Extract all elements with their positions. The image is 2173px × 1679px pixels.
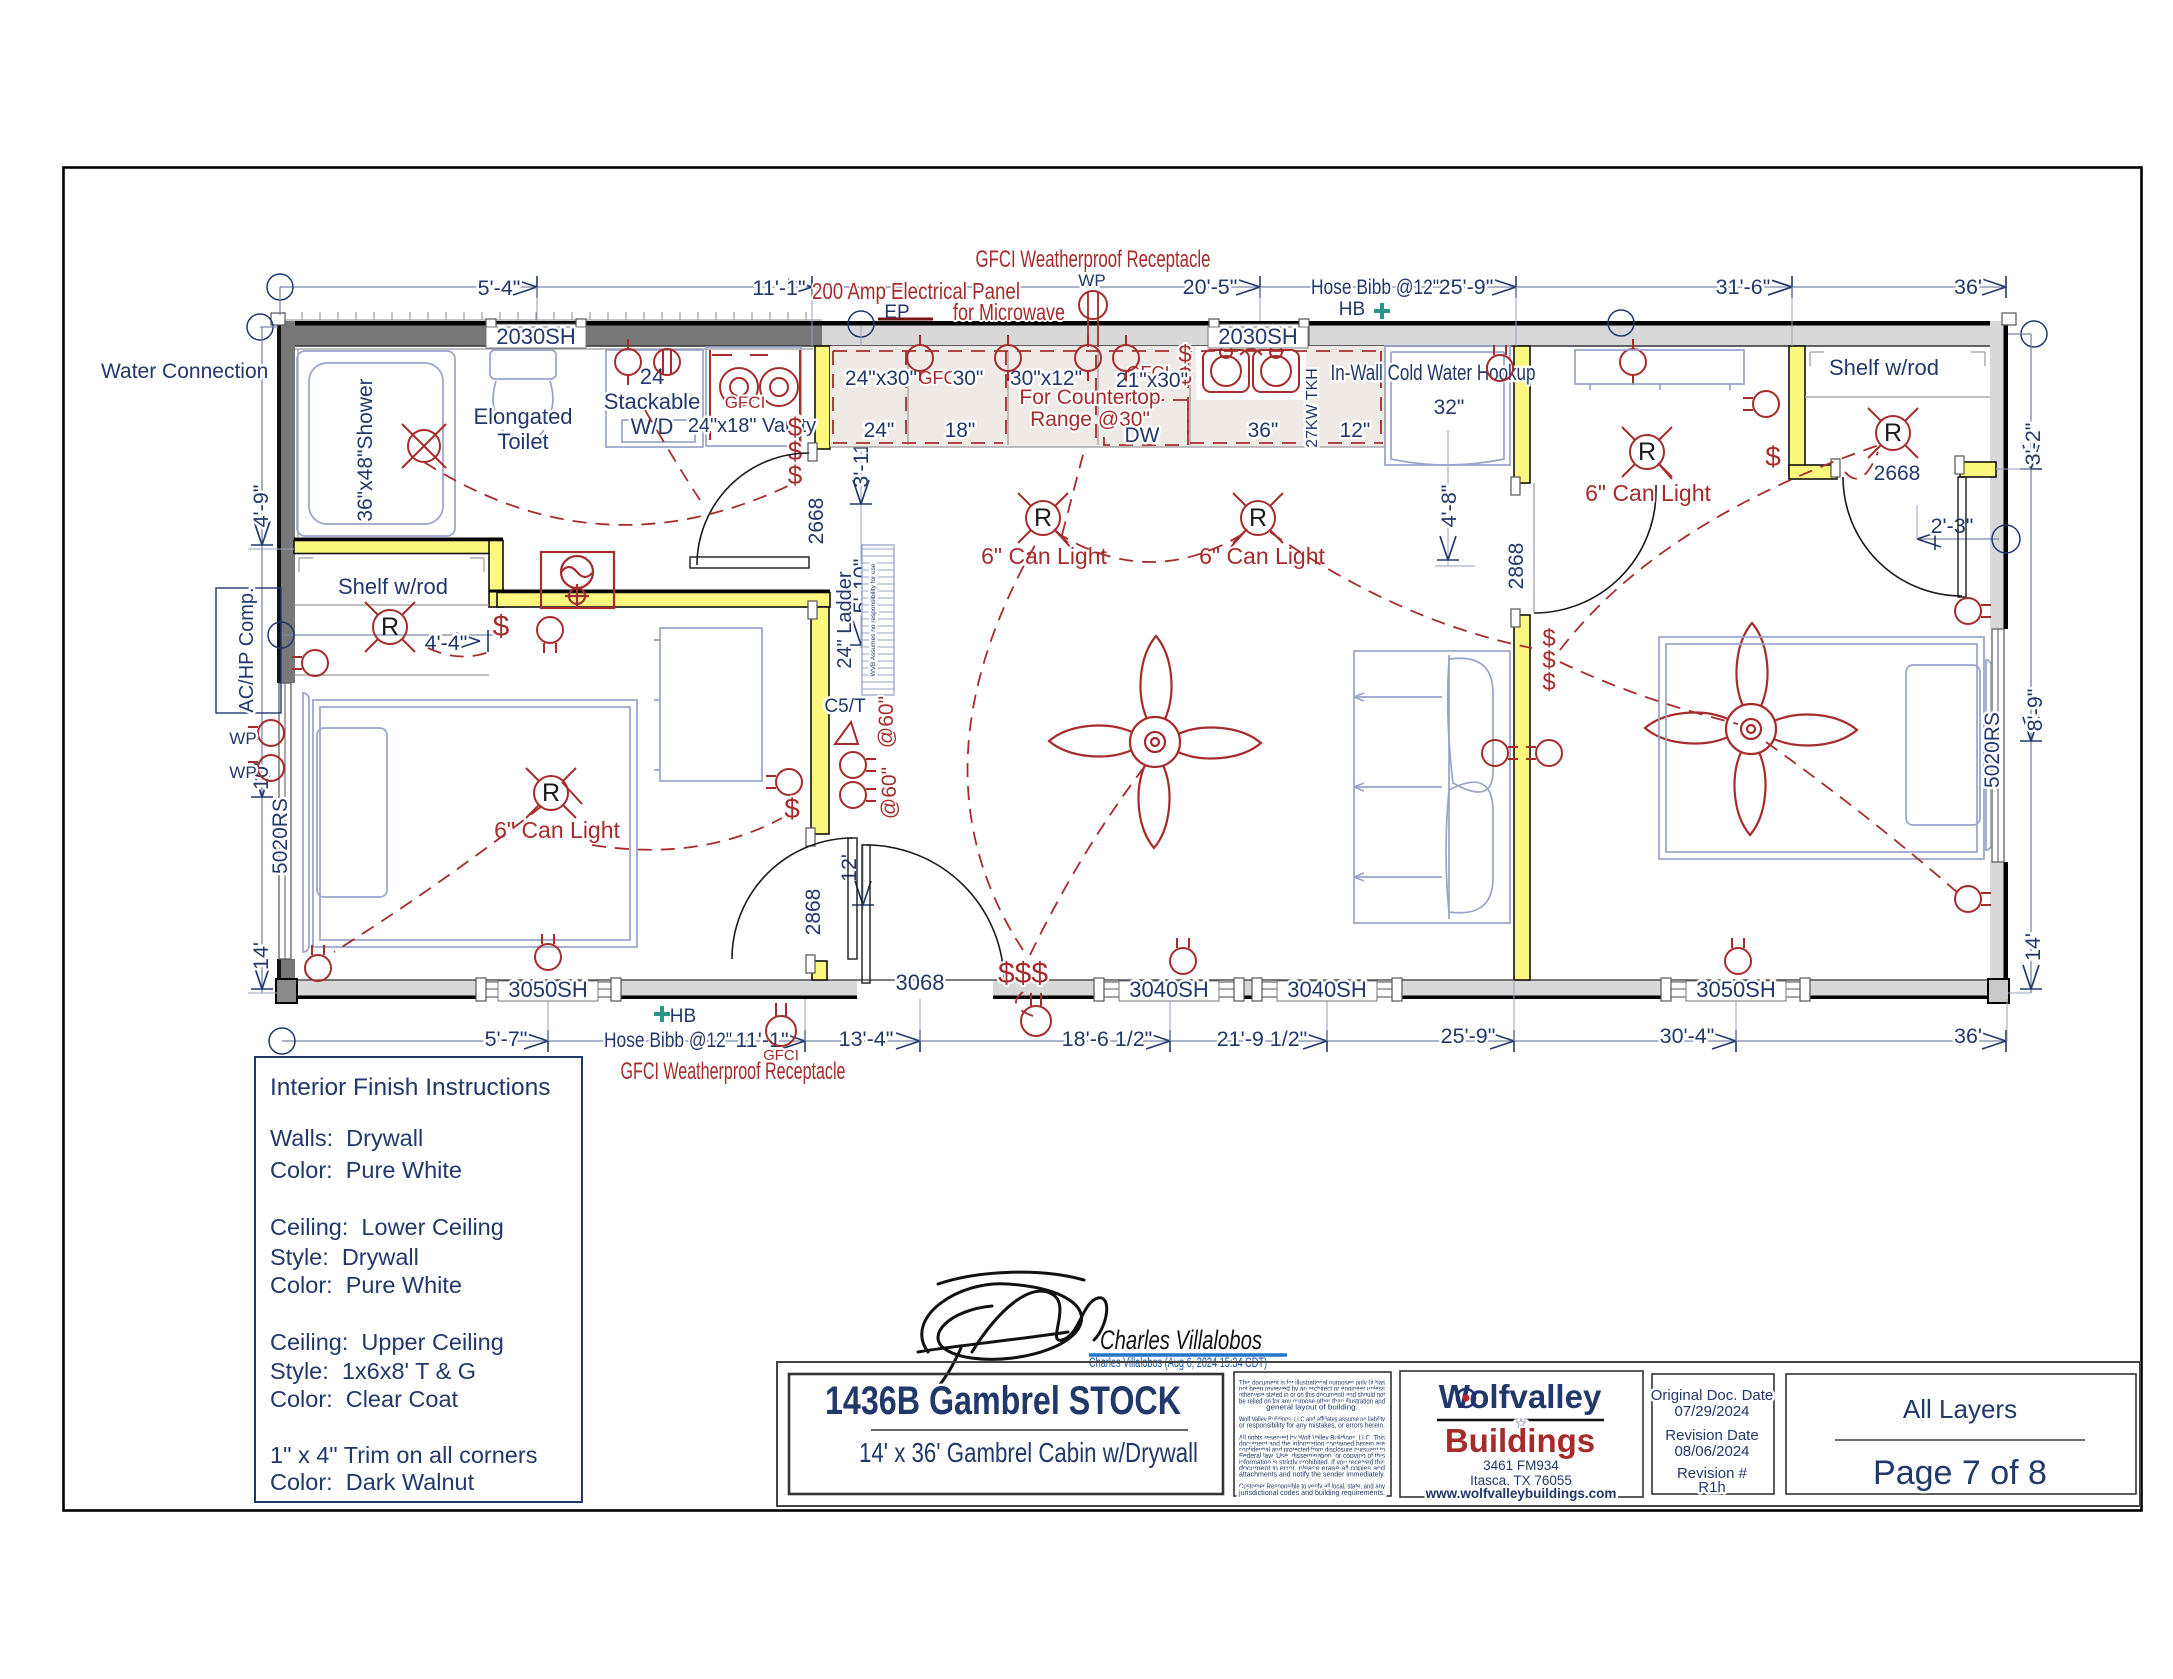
svg-text:30'-4": 30'-4" <box>1660 1024 1715 1048</box>
svg-text:www.wolfvalleybuildings.com: www.wolfvalleybuildings.com <box>1425 1486 1617 1501</box>
svg-text:WP: WP <box>1078 271 1105 290</box>
svg-text:5020RS: 5020RS <box>269 798 292 874</box>
svg-text:11'-1": 11'-1" <box>752 276 805 300</box>
svg-text:1436B Gambrel STOCK: 1436B Gambrel STOCK <box>825 1379 1181 1423</box>
svg-text:For Countertop: For Countertop <box>1019 386 1160 409</box>
svg-text:2030SH: 2030SH <box>1218 324 1298 349</box>
svg-text:3040SH: 3040SH <box>1287 977 1367 1002</box>
svg-text:or responsibility for any mist: or responsibility for any mistakes, or e… <box>1239 1421 1385 1430</box>
svg-text:21'-9 1/2": 21'-9 1/2" <box>1217 1027 1308 1051</box>
svg-text:2668: 2668 <box>1874 462 1921 485</box>
svg-text:GFCI Weatherproof Receptacle: GFCI Weatherproof Receptacle <box>621 1058 846 1085</box>
svg-text:Walls: Drywall: Walls: Drywall <box>270 1125 423 1151</box>
svg-text:6" Can Light: 6" Can Light <box>1585 480 1711 506</box>
svg-text:4'-8": 4'-8" <box>1437 485 1461 528</box>
svg-text:HB: HB <box>1339 299 1365 320</box>
svg-text:14' x 36' Gambrel Cabin w/Dryw: 14' x 36' Gambrel Cabin w/Drywall <box>859 1437 1198 1468</box>
svg-text:R1h: R1h <box>1698 1479 1726 1496</box>
svg-text:WP: WP <box>229 763 256 782</box>
svg-text:In-Wall Cold Water Hookup: In-Wall Cold Water Hookup <box>1331 360 1536 385</box>
svg-text:24"x30": 24"x30" <box>845 367 917 390</box>
svg-text:Elongated: Elongated <box>473 404 572 429</box>
svg-text:18'-6 1/2": 18'-6 1/2" <box>1062 1027 1153 1051</box>
svg-text:5020RS: 5020RS <box>1981 712 2004 788</box>
svg-text:$$$: $$$ <box>998 957 1048 990</box>
svg-text:HB: HB <box>670 1006 696 1027</box>
svg-text:Color: Pure White: Color: Pure White <box>270 1272 462 1298</box>
svg-text:36"x48"Shower: 36"x48"Shower <box>354 378 377 521</box>
svg-text:6" Can Light: 6" Can Light <box>981 543 1107 569</box>
svg-text:3050SH: 3050SH <box>508 977 588 1002</box>
svg-text:13'-4": 13'-4" <box>839 1027 894 1051</box>
svg-text:Page 7 of 8: Page 7 of 8 <box>1873 1454 2047 1492</box>
svg-text:W/D: W/D <box>631 414 674 439</box>
svg-text:20'-5": 20'-5" <box>1183 275 1238 299</box>
svg-text:$: $ <box>1765 441 1781 472</box>
svg-text:GFCI: GFCI <box>763 1047 799 1064</box>
svg-text:Color: Pure White: Color: Pure White <box>270 1157 462 1183</box>
svg-text:Stackable: Stackable <box>604 389 701 414</box>
svg-text:25'-9": 25'-9" <box>1441 1024 1496 1048</box>
svg-text:32": 32" <box>1434 396 1465 419</box>
svg-text:Color: Dark Walnut: Color: Dark Walnut <box>270 1469 475 1495</box>
svg-text:6" Can Light: 6" Can Light <box>494 817 620 843</box>
svg-text:Charles Villalobos: Charles Villalobos <box>1100 1325 1262 1355</box>
svg-text:27KW TKH: 27KW TKH <box>1304 368 1321 448</box>
svg-text:Style: Drywall: Style: Drywall <box>270 1244 419 1270</box>
svg-text:36': 36' <box>1954 1024 1982 1048</box>
svg-text:Shelf w/rod: Shelf w/rod <box>1829 355 1939 380</box>
svg-text:@60": @60" <box>878 767 901 819</box>
svg-text:Buildings: Buildings <box>1445 1422 1595 1459</box>
svg-text:Water Connection: Water Connection <box>101 360 268 383</box>
svg-text:2868: 2868 <box>1505 543 1528 590</box>
svg-text:36': 36' <box>1954 275 1982 299</box>
svg-text:attachments and notify the sen: attachments and notify the sender immedi… <box>1239 1470 1385 1479</box>
svg-text:Revision Date: Revision Date <box>1665 1427 1758 1444</box>
svg-text:3'-2": 3'-2" <box>2021 423 2045 466</box>
svg-text:@60": @60" <box>875 696 898 748</box>
svg-text:AC/HP Comp.: AC/HP Comp. <box>236 587 258 712</box>
svg-text:24" Ladder: 24" Ladder <box>834 571 856 669</box>
svg-text:Style: 1x6x8' T & G: Style: 1x6x8' T & G <box>270 1358 476 1384</box>
svg-text:12": 12" <box>1340 419 1371 442</box>
svg-text:24: 24 <box>640 364 664 389</box>
svg-text:Hose Bibb @12": Hose Bibb @12" <box>1311 275 1439 299</box>
svg-text:C5/T: C5/T <box>824 696 866 717</box>
svg-text:2'-3": 2'-3" <box>1931 514 1974 538</box>
svg-text:14': 14' <box>2021 933 2045 961</box>
svg-text:Original Doc. Date: Original Doc. Date <box>1651 1387 1774 1404</box>
svg-text:GFCI: GFCI <box>725 393 766 412</box>
svg-text:30": 30" <box>953 367 984 390</box>
svg-text:14': 14' <box>249 942 273 970</box>
svg-text:WVB Assumes no responsibility: WVB Assumes no responsibility for use <box>870 563 877 676</box>
svg-text:25'-9": 25'-9" <box>1439 275 1494 299</box>
svg-text:$: $ <box>788 460 803 490</box>
svg-text:jurisdictional codes and build: jurisdictional codes and building requir… <box>1238 1488 1385 1497</box>
svg-text:4'-9": 4'-9" <box>249 485 273 528</box>
svg-text:31'-6": 31'-6" <box>1716 275 1771 299</box>
svg-text:Ceiling: Lower Ceiling: Ceiling: Lower Ceiling <box>270 1214 504 1240</box>
svg-text:for Microwave: for Microwave <box>953 299 1065 325</box>
svg-text:All Layers: All Layers <box>1903 1394 2017 1424</box>
svg-text:3050SH: 3050SH <box>1696 977 1776 1002</box>
svg-text:$: $ <box>493 610 510 643</box>
svg-text:4'-4": 4'-4" <box>425 631 468 655</box>
svg-text:3040SH: 3040SH <box>1129 977 1209 1002</box>
svg-text:3461 FM934: 3461 FM934 <box>1483 1458 1559 1473</box>
svg-text:08/06/2024: 08/06/2024 <box>1674 1443 1749 1460</box>
svg-text:DW: DW <box>1125 424 1160 447</box>
svg-text:3068: 3068 <box>896 970 945 995</box>
svg-text:$: $ <box>784 793 800 824</box>
svg-text:18": 18" <box>945 419 976 442</box>
svg-text:Color: Clear Coat: Color: Clear Coat <box>270 1386 459 1412</box>
svg-text:Toilet: Toilet <box>497 429 548 454</box>
svg-text:Ceiling: Upper Ceiling: Ceiling: Upper Ceiling <box>270 1329 504 1355</box>
svg-text:2030SH: 2030SH <box>496 324 576 349</box>
svg-text:Hose Bibb @12": Hose Bibb @12" <box>604 1028 732 1052</box>
svg-text:$: $ <box>1542 669 1555 696</box>
svg-text:8'-9": 8'-9" <box>2023 689 2047 732</box>
svg-text:36": 36" <box>1248 419 1279 442</box>
svg-text:5'-4": 5'-4" <box>478 276 521 300</box>
svg-text:07/29/2024: 07/29/2024 <box>1674 1403 1749 1420</box>
svg-text:GFCI Weatherproof Receptacle: GFCI Weatherproof Receptacle <box>976 246 1211 273</box>
svg-text:WP: WP <box>229 729 256 748</box>
svg-text:general layout of building.: general layout of building. <box>1266 1402 1358 1411</box>
svg-text:5'-7": 5'-7" <box>485 1027 528 1051</box>
svg-text:Interior Finish Instructions: Interior Finish Instructions <box>270 1074 551 1101</box>
svg-text:2868: 2868 <box>802 889 825 936</box>
svg-text:Shelf w/rod: Shelf w/rod <box>338 574 448 599</box>
svg-text:1" x 4" Trim on all corners: 1" x 4" Trim on all corners <box>270 1442 537 1468</box>
svg-text:24": 24" <box>864 419 895 442</box>
svg-text:2668: 2668 <box>805 498 828 545</box>
